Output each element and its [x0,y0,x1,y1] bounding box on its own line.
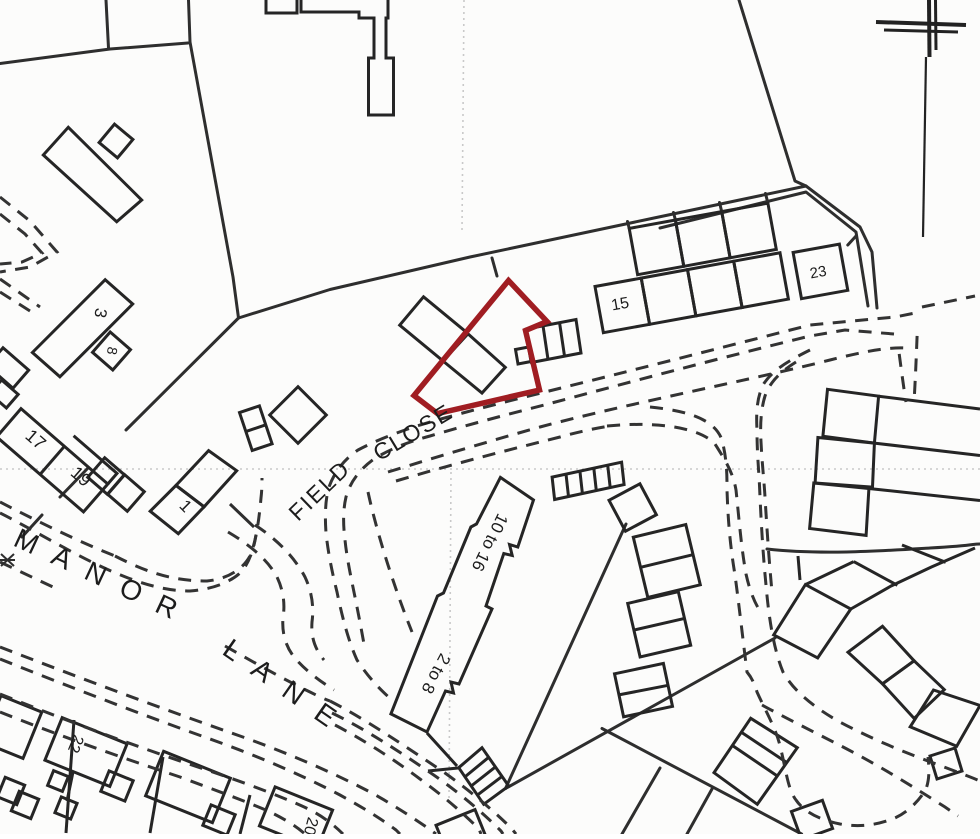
svg-text:15: 15 [610,295,631,315]
svg-text:23: 23 [809,263,828,283]
